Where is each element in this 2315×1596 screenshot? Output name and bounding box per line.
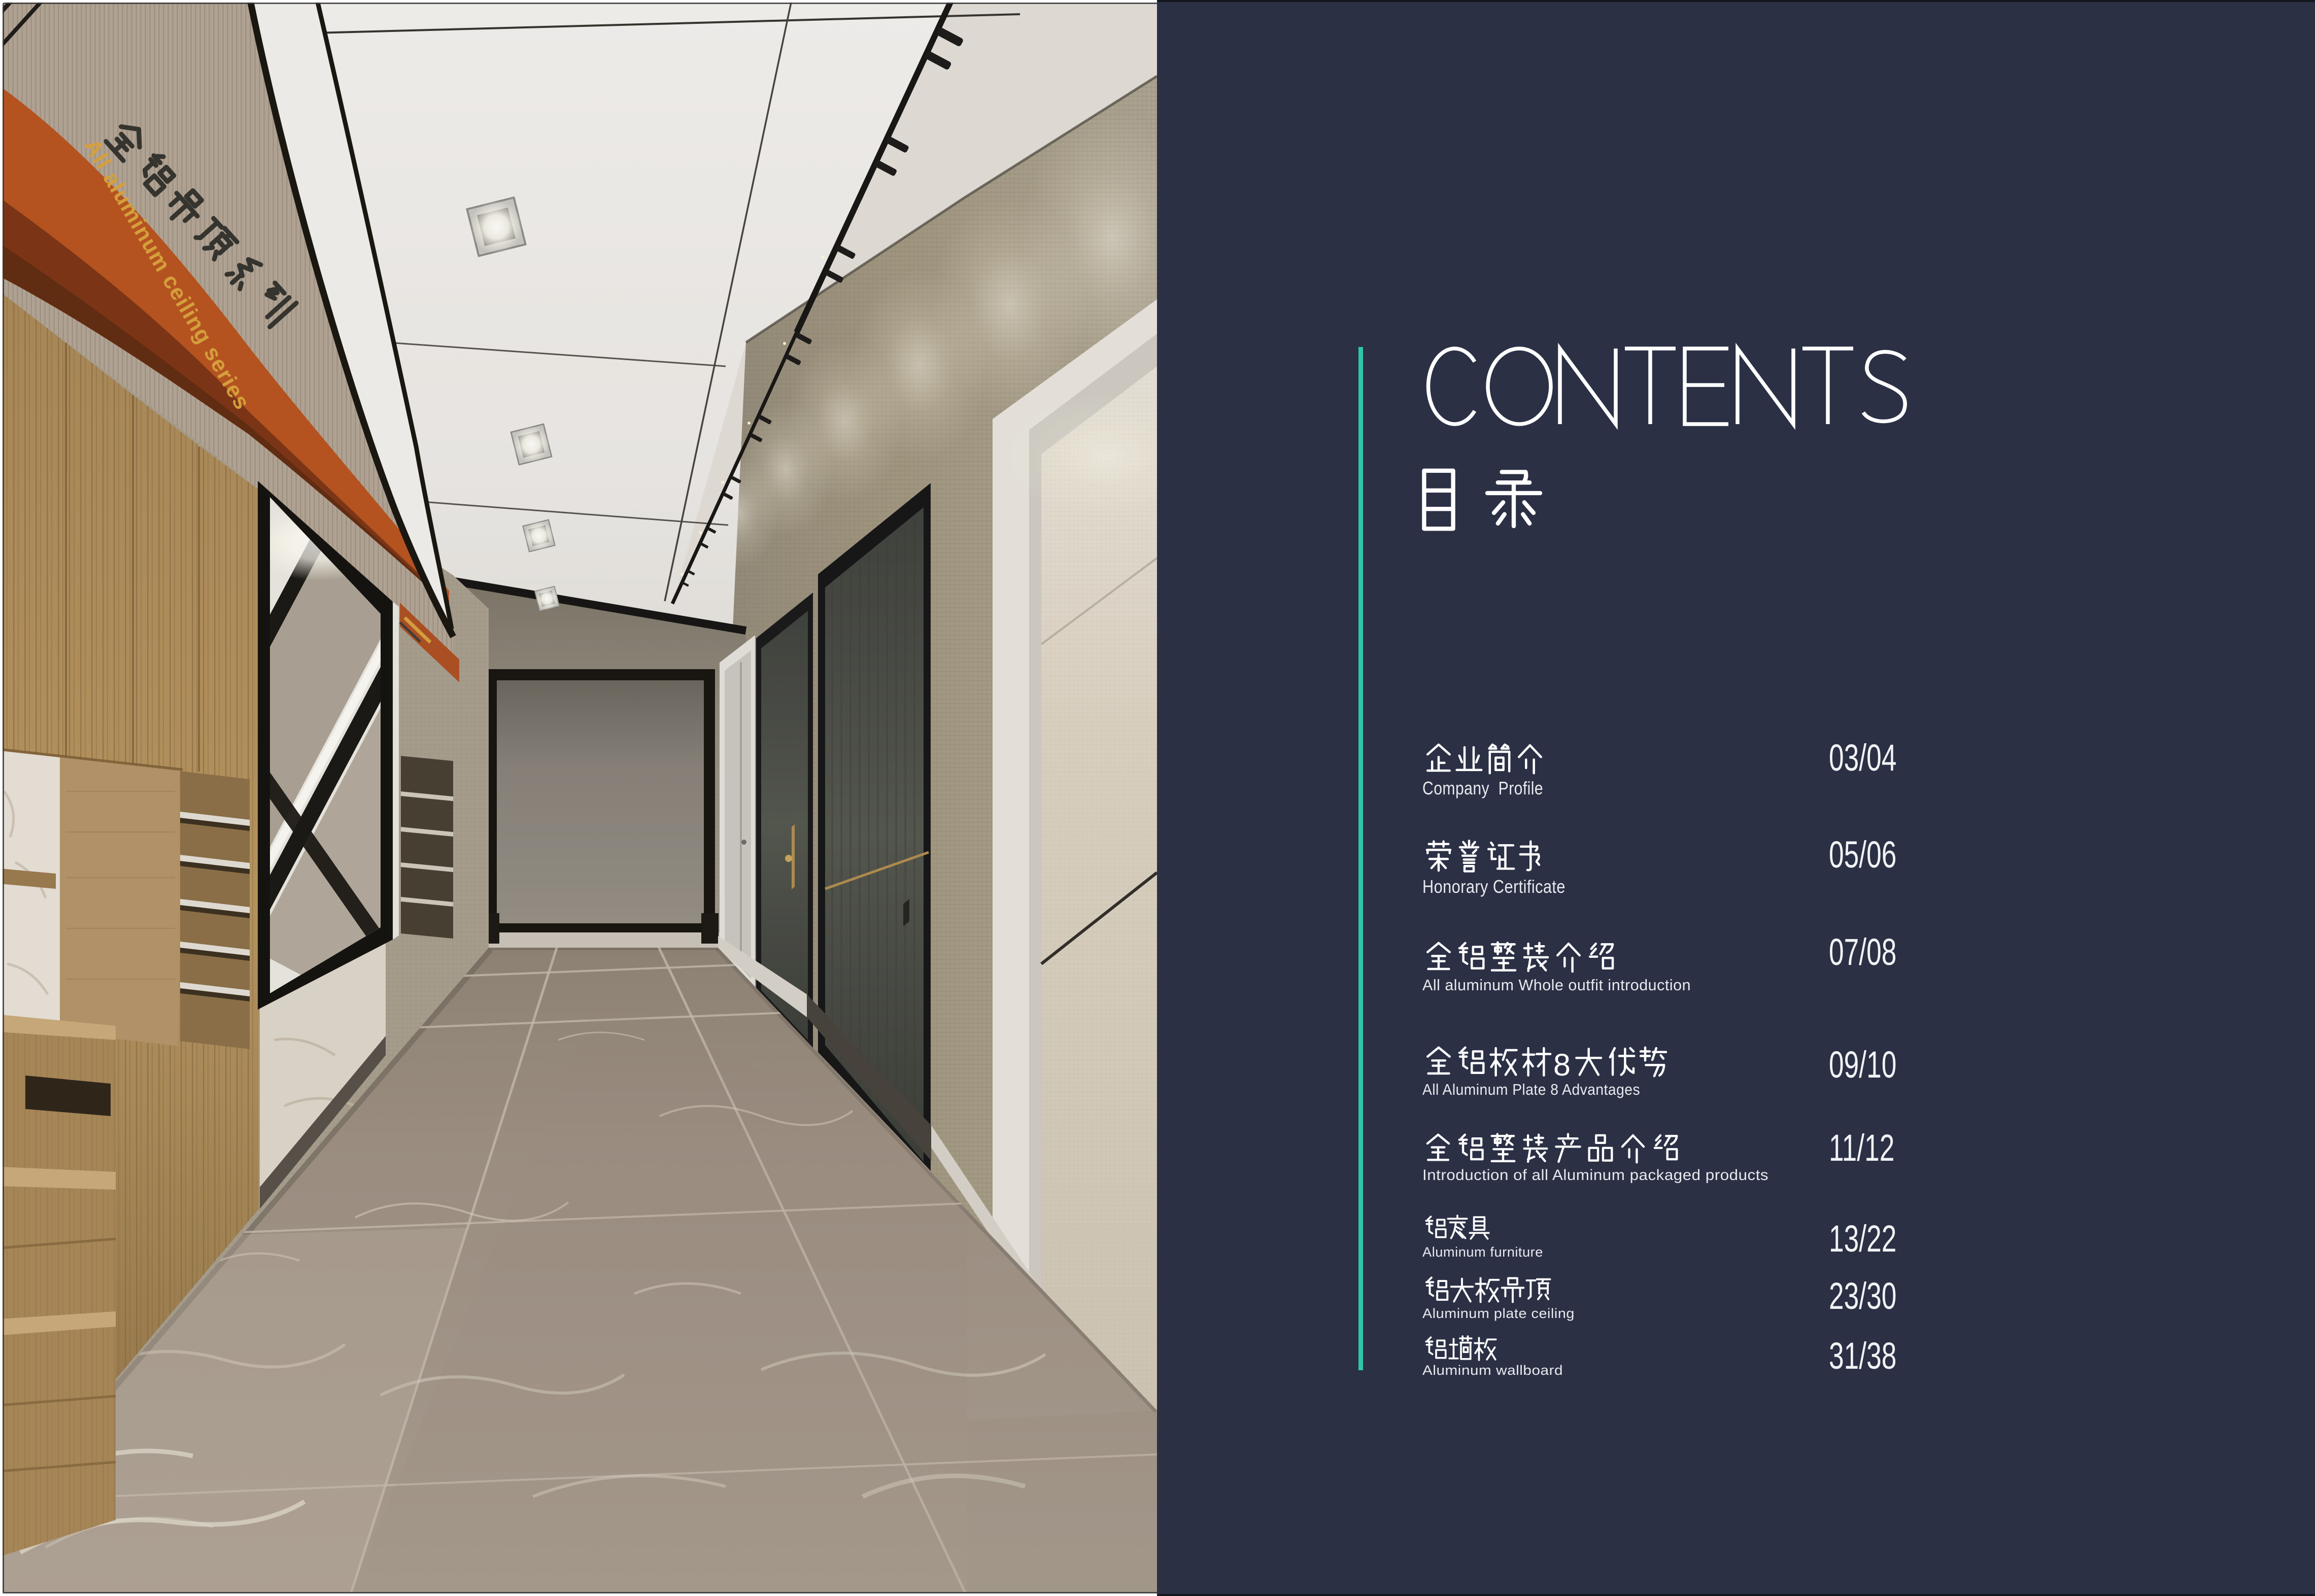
svg-text:8: 8	[1553, 1048, 1571, 1082]
